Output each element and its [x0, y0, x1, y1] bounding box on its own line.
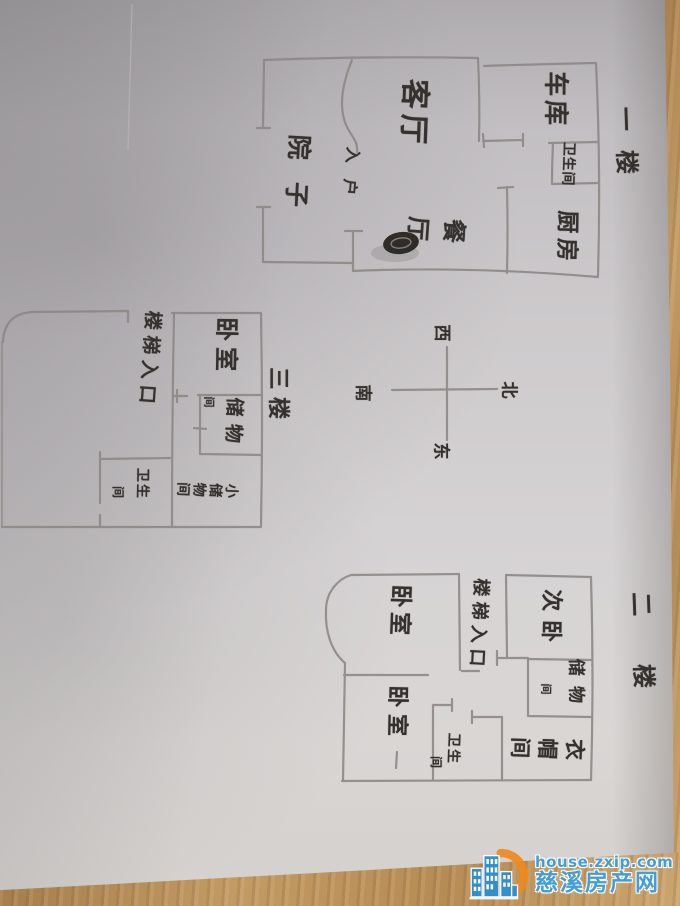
floor2-cloakroom-label: 衣帽间	[504, 735, 587, 759]
photo-of-floorplan: 客厅车库一楼卫生间厨房餐厅院子入户西北东南卧室楼梯入口三楼储物间小储物间卫生间卧…	[0, 0, 680, 906]
compass-north-label: 北	[500, 382, 517, 399]
floor3-storage-label: 储物	[223, 397, 244, 451]
living-room-label: 客厅	[397, 78, 429, 149]
floorplan-drawing	[0, 0, 680, 906]
paper-crease	[128, 4, 132, 150]
compass-east-label: 东	[432, 443, 449, 460]
entry-curve	[342, 60, 357, 152]
entry-label: 入户	[339, 146, 361, 211]
floor1-bathroom-label: 卫生间	[560, 142, 576, 187]
floor3-small-storage-label: 小储物间	[175, 481, 240, 497]
garage-label: 车库	[544, 71, 569, 129]
kitchen-label: 厨房	[554, 210, 578, 266]
floor2-bedroom-bottom-label: 卧室	[385, 685, 408, 743]
floor3-bedroom-label: 卧室	[213, 317, 238, 377]
floor3-stairs-entrance-label: 楼梯入口	[136, 310, 162, 410]
watermark: house.zxip.com 慈溪房产网	[467, 845, 679, 905]
yard-label: 院子	[282, 134, 312, 230]
floor1-title: 一楼	[612, 106, 639, 193]
watermark-site-name: 慈溪房产网	[535, 872, 660, 895]
floor3-bathroom-label-suffix: 间	[112, 486, 124, 498]
dining-room-label: 餐厅	[394, 213, 467, 242]
floor2-storage-label-suffix: 间	[541, 684, 552, 695]
watermark-text: house.zxip.com 慈溪房产网	[535, 855, 673, 895]
floor2-title: 二楼	[628, 592, 657, 737]
floor2-storage-label: 储物	[567, 659, 584, 713]
floor2-stairs-entrance-label: 楼梯入口	[467, 578, 490, 672]
bay-window-curve	[326, 575, 351, 663]
floor2-bathroom-label-suffix: 间	[430, 756, 442, 768]
compass-cross	[392, 347, 497, 440]
floor2-bedroom-top-label: 卧室	[387, 584, 412, 640]
floor3-title: 三楼	[266, 367, 288, 426]
site-logo-icon	[467, 846, 531, 904]
compass-west-label: 西	[433, 325, 450, 342]
floor2-bathroom-label: 卫生	[445, 733, 460, 766]
floor2-second-bedroom-label: 次卧	[538, 589, 561, 651]
compass-south-label: 南	[354, 385, 371, 402]
watermark-url: house.zxip.com	[535, 855, 673, 870]
floor3-bathroom-label: 卫生	[135, 468, 150, 500]
floor3-storage-label-suffix: 间	[204, 397, 215, 408]
